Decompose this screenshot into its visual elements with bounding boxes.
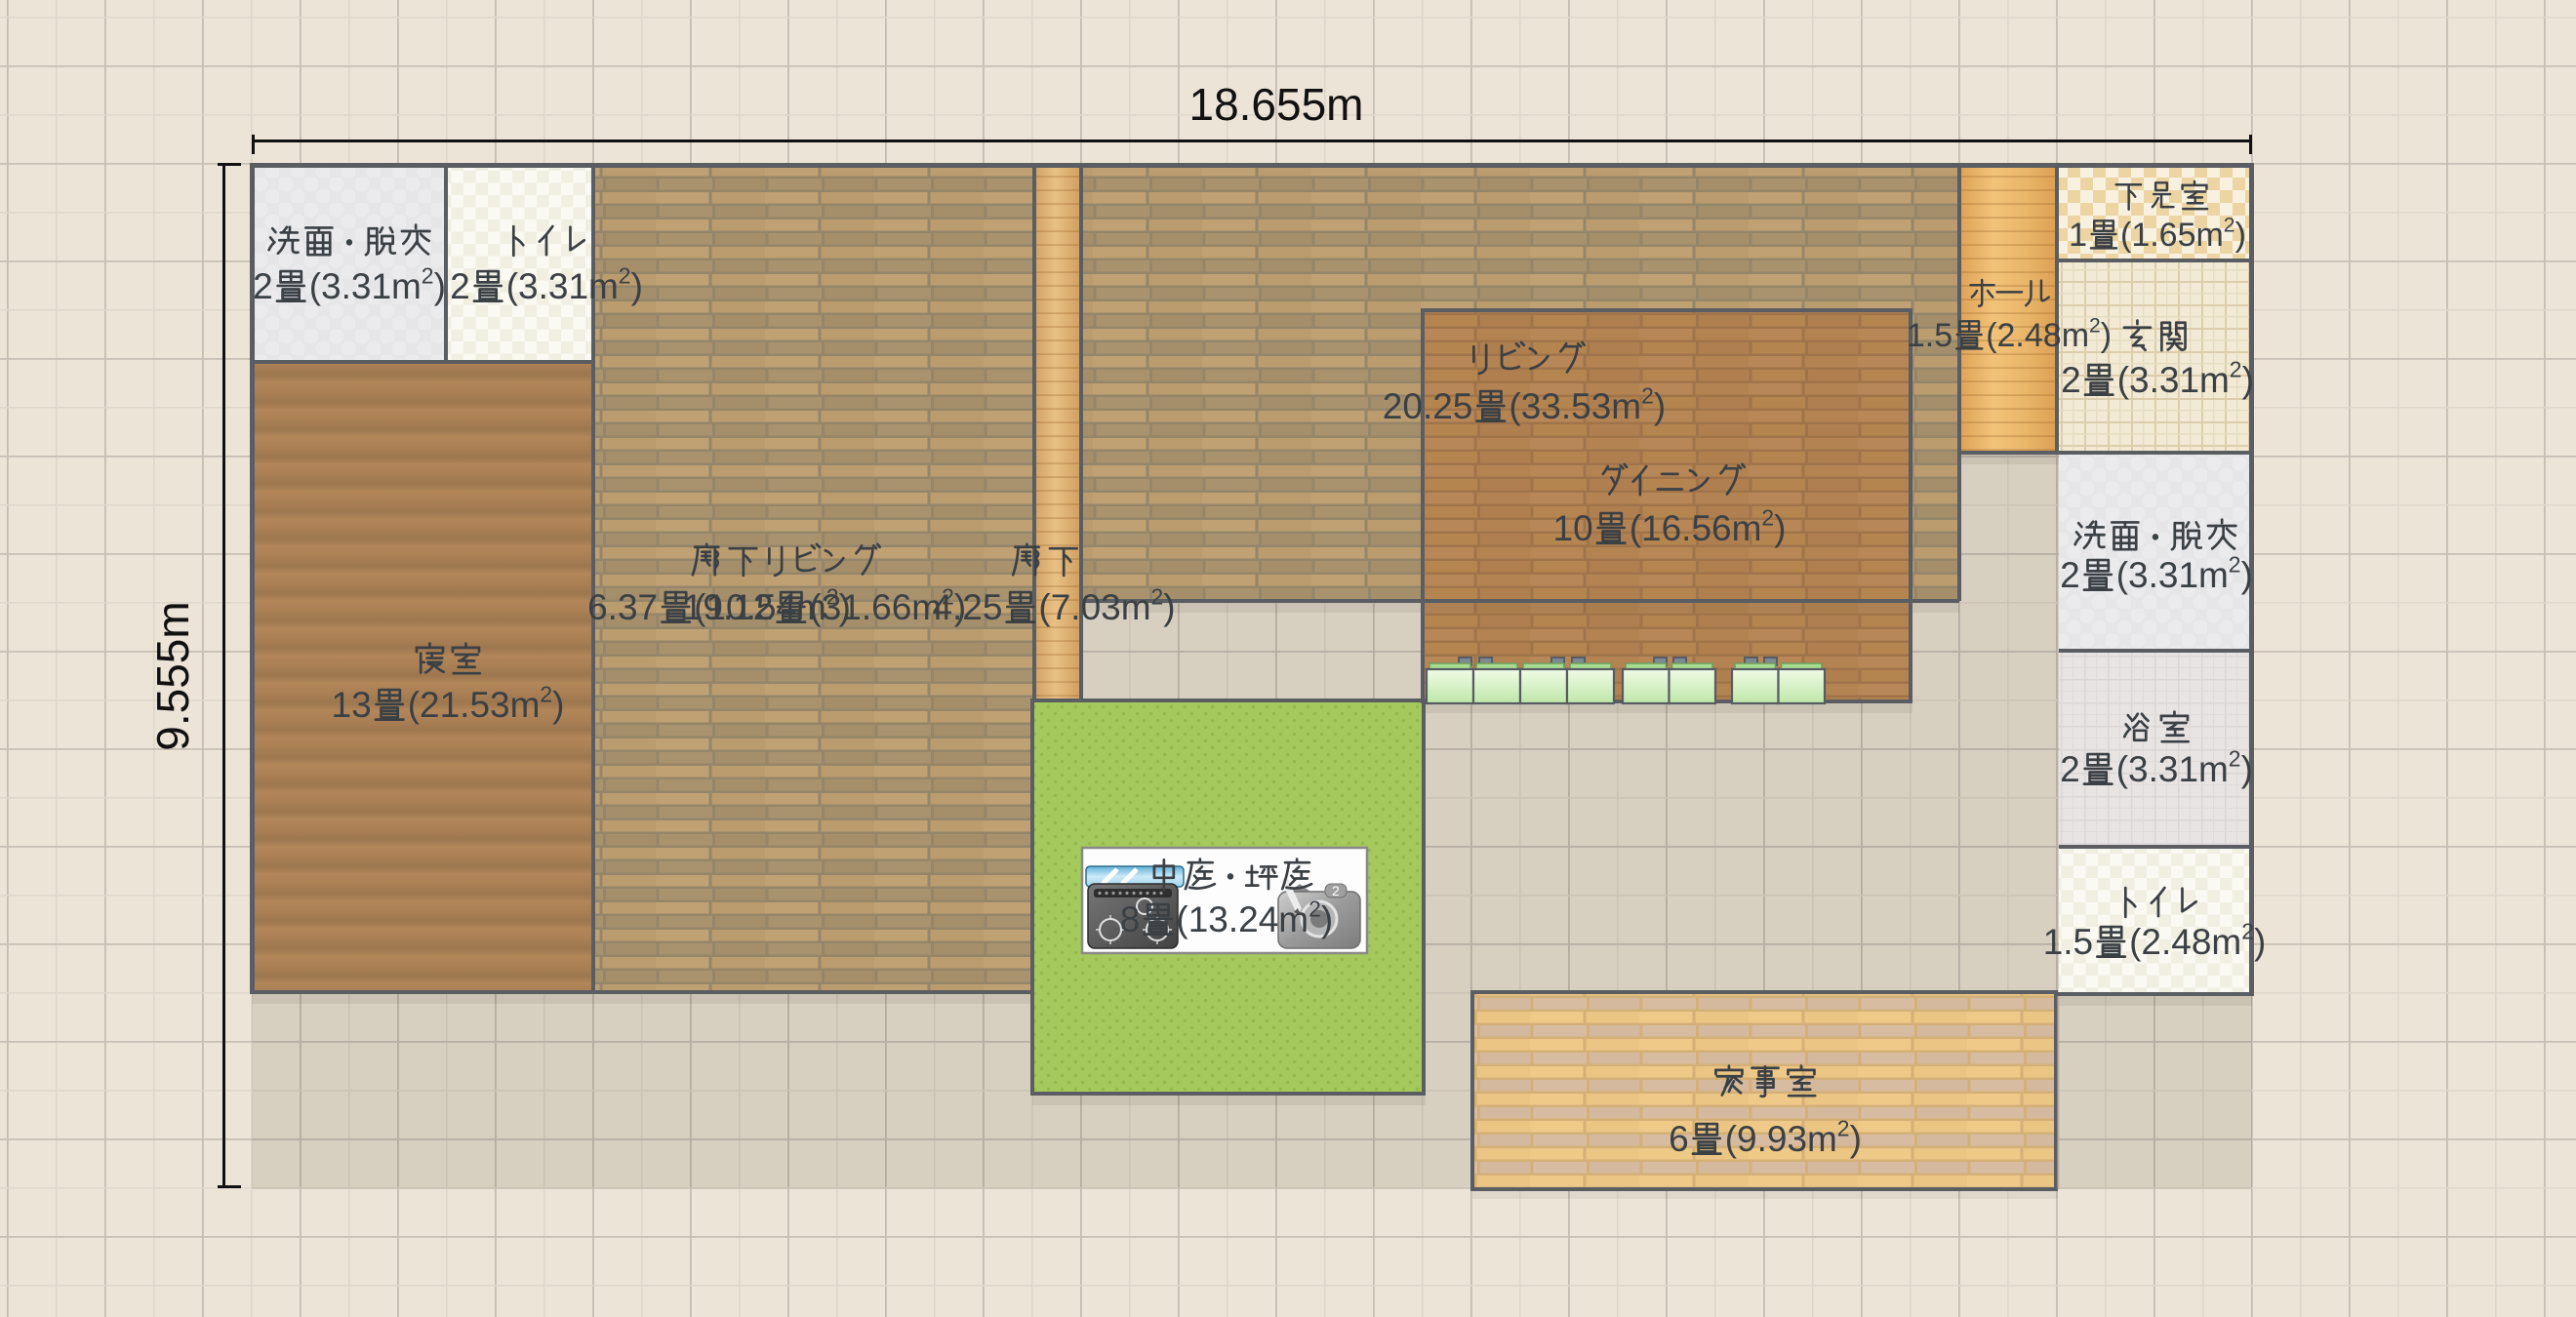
- svg-text:2: 2: [2230, 357, 2242, 382]
- svg-text:m: m: [1278, 899, 1308, 939]
- svg-text:2: 2: [2060, 555, 2080, 595]
- svg-text:2: 2: [1308, 897, 1321, 922]
- svg-text:): ): [2242, 360, 2254, 400]
- svg-text:): ): [1163, 587, 1175, 627]
- svg-text:): ): [1654, 386, 1666, 426]
- svg-text:1.5: 1.5: [2043, 922, 2093, 962]
- svg-text:2: 2: [2060, 749, 2080, 789]
- svg-text:m: m: [510, 685, 541, 725]
- svg-text:(2.48: (2.48: [2129, 922, 2211, 962]
- svg-text:m: m: [1807, 1119, 1837, 1159]
- svg-text:(33.53: (33.53: [1509, 386, 1611, 426]
- svg-text:8: 8: [1120, 899, 1141, 939]
- svg-text:): ): [631, 266, 643, 306]
- svg-text:1: 1: [2069, 217, 2087, 254]
- svg-text:): ): [434, 266, 446, 306]
- svg-text:2: 2: [1761, 505, 1774, 531]
- svg-text:6: 6: [1669, 1119, 1689, 1159]
- svg-text:2: 2: [2241, 919, 2254, 944]
- svg-text:m: m: [588, 266, 619, 306]
- svg-text:20.25: 20.25: [1383, 386, 1473, 426]
- svg-text:(3.31: (3.31: [2117, 360, 2199, 400]
- svg-text:(3.31: (3.31: [2116, 749, 2198, 789]
- svg-text:2: 2: [2229, 552, 2241, 578]
- svg-text:m: m: [391, 266, 422, 306]
- svg-text:18.655m: 18.655m: [1188, 79, 1363, 130]
- svg-text:(1.65: (1.65: [2120, 217, 2196, 254]
- svg-text:9.555m: 9.555m: [147, 601, 198, 750]
- svg-text:m: m: [2211, 922, 2241, 962]
- svg-text:): ): [2254, 922, 2266, 962]
- svg-text:(3.31: (3.31: [309, 266, 391, 306]
- svg-text:6.37: 6.37: [587, 587, 658, 627]
- svg-text:(21.53: (21.53: [408, 685, 510, 725]
- svg-text:2: 2: [619, 263, 631, 289]
- svg-text:10: 10: [1553, 508, 1593, 548]
- svg-text:(16.56: (16.56: [1630, 508, 1732, 548]
- svg-text:2: 2: [1641, 383, 1654, 409]
- svg-text:m: m: [2062, 317, 2089, 354]
- svg-text:4.25: 4.25: [932, 587, 1002, 627]
- svg-text:): ): [552, 685, 564, 725]
- svg-text:2: 2: [1332, 883, 1340, 898]
- svg-text:m: m: [1611, 386, 1641, 426]
- svg-text:1.5: 1.5: [1907, 317, 1952, 354]
- svg-text:2: 2: [422, 263, 434, 289]
- svg-text:m: m: [1732, 508, 1762, 548]
- svg-text:(7.03: (7.03: [1038, 587, 1120, 627]
- svg-text:m: m: [1121, 587, 1151, 627]
- svg-text:m: m: [2196, 217, 2224, 254]
- svg-text:(13.24: (13.24: [1176, 899, 1278, 939]
- svg-text:): ): [2235, 217, 2246, 254]
- svg-text:): ): [1774, 508, 1786, 548]
- svg-text:2: 2: [2061, 360, 2081, 400]
- svg-text:): ): [2101, 317, 2112, 354]
- svg-text:2: 2: [1151, 584, 1164, 610]
- svg-text:(31.66: (31.66: [809, 587, 911, 627]
- svg-text:13: 13: [332, 685, 372, 725]
- svg-text:2: 2: [2224, 215, 2235, 237]
- svg-text:m: m: [2199, 360, 2230, 400]
- svg-text:2: 2: [1837, 1116, 1850, 1141]
- svg-text:(9.93: (9.93: [1725, 1119, 1807, 1159]
- svg-text:2: 2: [540, 682, 552, 707]
- svg-text:2: 2: [2089, 315, 2101, 338]
- svg-text:): ): [1850, 1119, 1862, 1159]
- svg-text:2: 2: [253, 266, 273, 306]
- svg-text:): ): [2241, 555, 2253, 595]
- svg-text:2: 2: [2229, 746, 2241, 772]
- svg-text:): ): [2241, 749, 2253, 789]
- svg-text:m: m: [2198, 749, 2229, 789]
- svg-text:(3.31: (3.31: [2116, 555, 2198, 595]
- svg-text:19.12: 19.12: [683, 587, 774, 627]
- svg-text:): ): [1321, 899, 1333, 939]
- svg-text:2: 2: [450, 266, 470, 306]
- svg-text:m: m: [2198, 555, 2229, 595]
- svg-text:(2.48: (2.48: [1986, 317, 2062, 354]
- svg-text:(3.31: (3.31: [506, 266, 588, 306]
